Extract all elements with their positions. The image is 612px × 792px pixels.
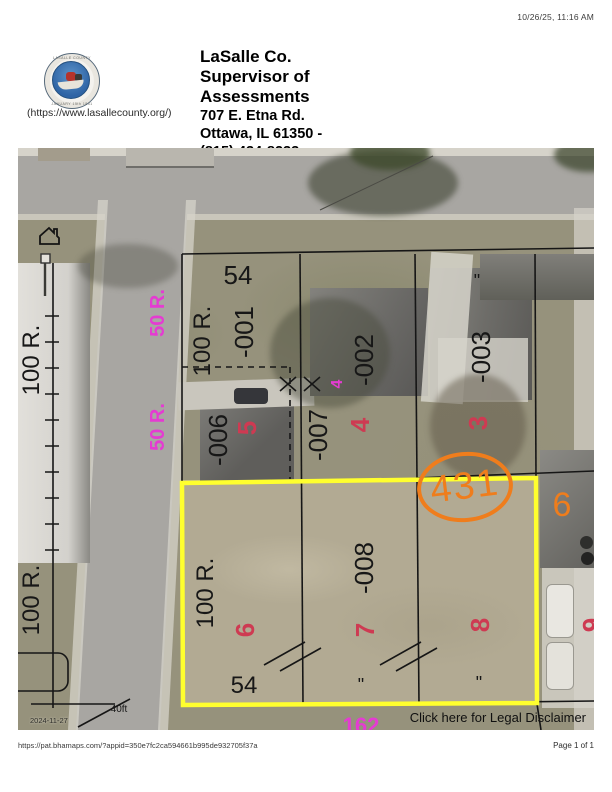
map-label-100R: 100 R.	[20, 565, 44, 636]
map-label-: "	[476, 674, 482, 692]
map-label-54: 54	[231, 674, 258, 698]
org-address-line: Ottawa, IL 61350 -	[200, 125, 322, 143]
map-label-5: 5	[234, 421, 260, 435]
county-website-link[interactable]: (https://www.lasallecounty.org/)	[27, 107, 172, 119]
utility-line	[320, 156, 433, 210]
map-label-6: 6	[232, 623, 258, 637]
map-label-162: 162	[343, 715, 380, 730]
seal-inner-art	[52, 61, 90, 99]
map-label-6: 6	[553, 488, 572, 522]
office-header-block: LaSalle Co. Supervisor of Assessments 70…	[200, 47, 322, 161]
map-label-100R: 100 R.	[191, 306, 215, 377]
sign-post-icon	[41, 254, 50, 296]
org-name-line: Assessments	[200, 87, 322, 107]
highlighted-parcel-number: 431	[428, 461, 502, 512]
map-label-50R: 50 R.	[148, 403, 168, 451]
seal-ring-text-bottom: JANUARY 15th 1831	[45, 102, 99, 106]
map-label-50R: 50 R.	[148, 289, 168, 337]
map-label-001: -001	[231, 306, 257, 358]
map-label-4: 4	[347, 418, 373, 432]
legal-disclaimer-link[interactable]: Click here for Legal Disclaimer	[410, 710, 586, 725]
map-label-002: -002	[351, 334, 377, 386]
print-footer-url: https://pat.bhamaps.com/?appid=350e7fc2c…	[18, 741, 258, 750]
map-label-7: 7	[352, 623, 378, 637]
poi-house-icon	[40, 228, 59, 244]
map-label-4: 4	[330, 380, 346, 389]
print-footer-page-number: Page 1 of 1	[553, 741, 594, 750]
map-label-40ft: 40ft	[111, 705, 128, 715]
map-label-003: -003	[468, 331, 494, 383]
map-label-100R: 100 R.	[194, 558, 218, 629]
map-label-9: 9	[579, 618, 594, 632]
map-label-100R: 100 R.	[20, 325, 44, 396]
org-address-line: 707 E. Etna Rd.	[200, 107, 322, 125]
org-name-line: Supervisor of	[200, 67, 322, 87]
print-timestamp: 10/26/25, 11:16 AM	[517, 12, 594, 22]
org-name-line: LaSalle Co.	[200, 47, 322, 67]
seal-ring-text-top: LASALLE COUNTY	[45, 56, 99, 60]
map-label-: "	[358, 676, 364, 694]
map-label-006: -006	[205, 414, 231, 466]
map-label-3: 3	[465, 416, 491, 430]
parcel-aerial-map: 54100 R.-001-002-003-006-007-008100 R.10…	[18, 148, 594, 730]
map-label-: "	[474, 272, 480, 290]
lasalle-county-seal-logo: LASALLE COUNTY JANUARY 15th 1831	[44, 53, 100, 109]
map-label-008: -008	[351, 542, 377, 594]
imagery-date-stamp: 2024-11-27	[30, 716, 68, 725]
map-label-8: 8	[467, 618, 493, 632]
parcel-boundary-lines	[18, 248, 594, 730]
map-label-54: 54	[224, 262, 253, 288]
map-label-007: -007	[305, 409, 331, 461]
